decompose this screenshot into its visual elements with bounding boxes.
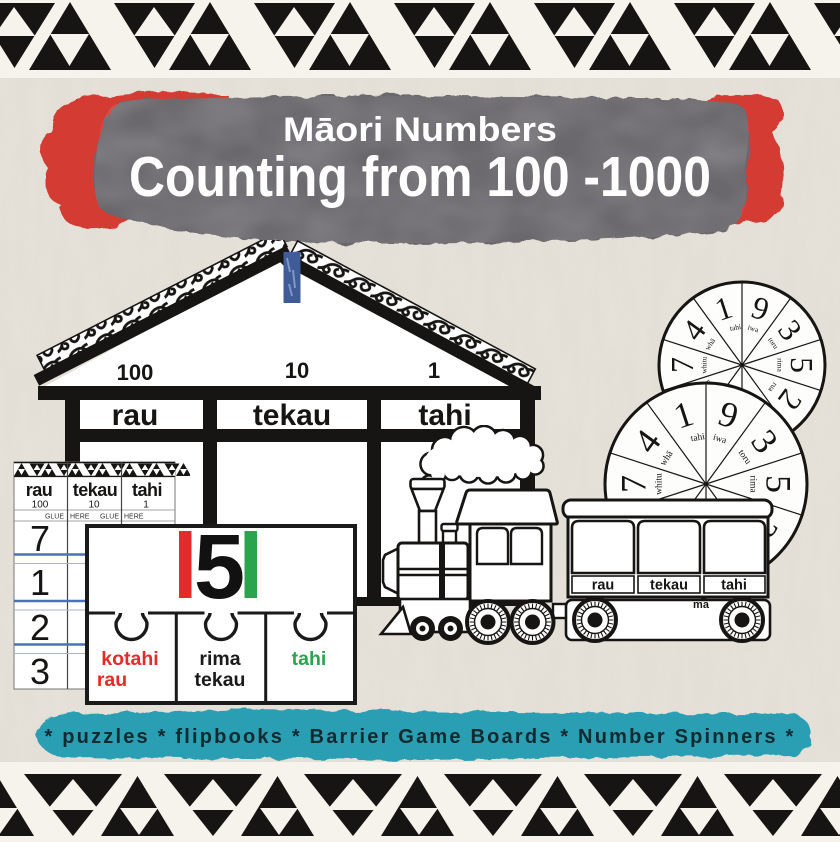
svg-text:7: 7 (664, 357, 700, 373)
svg-text:rau: rau (112, 399, 159, 432)
svg-text:5: 5 (784, 357, 820, 373)
svg-text:whitu: whitu (699, 356, 708, 373)
svg-text:1: 1 (428, 358, 440, 383)
svg-text:tekau: tekau (650, 578, 688, 594)
svg-text:3: 3 (30, 651, 50, 692)
svg-text:7: 7 (30, 518, 50, 559)
svg-text:tahi: tahi (132, 480, 162, 500)
svg-text:100: 100 (117, 360, 154, 385)
svg-text:10: 10 (88, 500, 100, 511)
svg-text:Māori Numbers: Māori Numbers (283, 111, 557, 149)
svg-text:1: 1 (143, 500, 149, 511)
svg-text:GLUE: GLUE (100, 514, 119, 521)
svg-text:rau: rau (592, 578, 615, 594)
svg-text:Counting from 100 -1000: Counting from 100 -1000 (129, 145, 711, 209)
svg-text:100: 100 (32, 500, 49, 511)
svg-text:rau: rau (26, 480, 53, 500)
svg-text:rau: rau (97, 669, 127, 691)
svg-text:ma: ma (693, 599, 710, 611)
svg-text:tekau: tekau (195, 669, 246, 691)
svg-text:tahi: tahi (721, 578, 747, 594)
svg-text:tekau: tekau (253, 399, 331, 432)
svg-text:HERE: HERE (70, 514, 90, 521)
svg-text:* puzzles * flipbooks * Barrie: * puzzles * flipbooks * Barrier Game Boa… (45, 726, 796, 748)
svg-text:rima: rima (776, 358, 785, 372)
svg-text:tekau: tekau (73, 480, 118, 500)
svg-text:2: 2 (30, 607, 50, 648)
svg-text:1: 1 (30, 562, 50, 603)
svg-text:5: 5 (194, 524, 245, 618)
svg-text:10: 10 (285, 358, 309, 383)
svg-text:tahi: tahi (292, 648, 327, 670)
svg-text:tahi: tahi (729, 322, 742, 333)
svg-text:rima: rima (199, 648, 240, 670)
svg-text:kotahi: kotahi (101, 648, 158, 670)
svg-text:HERE: HERE (124, 514, 144, 521)
